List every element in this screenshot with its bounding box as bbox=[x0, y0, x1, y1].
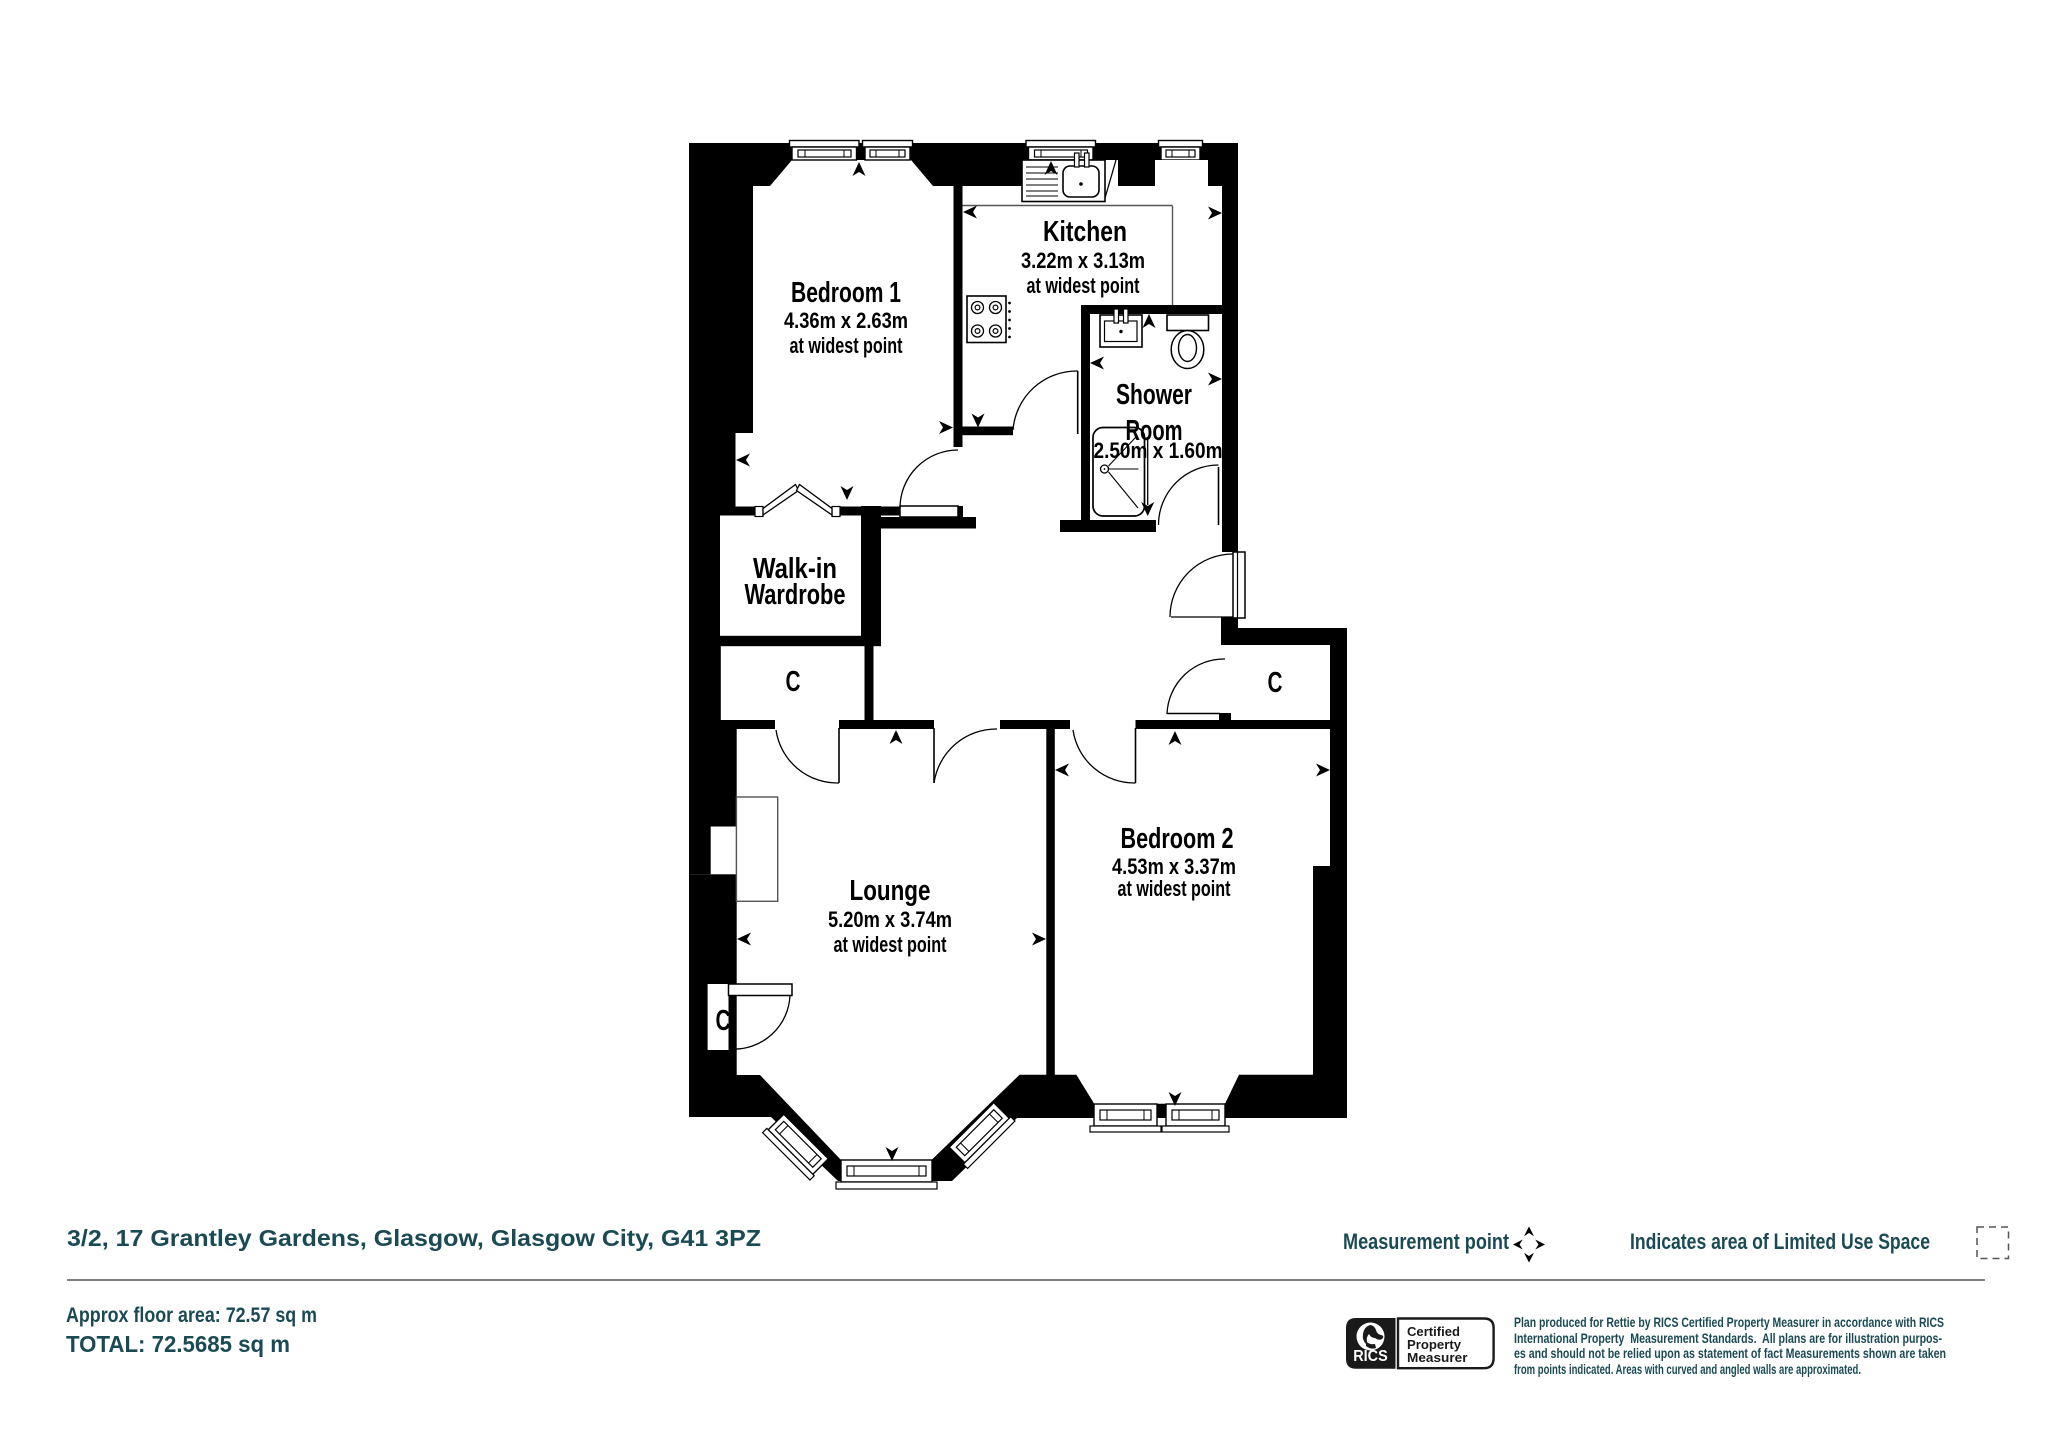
svg-text:Bedroom 1: Bedroom 1 bbox=[791, 277, 901, 309]
svg-text:3.22m x 3.13m: 3.22m x 3.13m bbox=[1021, 248, 1145, 273]
svg-text:Approx floor area: 72.57 sq m: Approx floor area: 72.57 sq m bbox=[66, 1304, 317, 1327]
svg-text:Lounge: Lounge bbox=[850, 875, 931, 907]
svg-text:C: C bbox=[716, 1005, 731, 1037]
svg-text:at widest point: at widest point bbox=[834, 932, 947, 957]
svg-text:at widest point: at widest point bbox=[1118, 876, 1231, 901]
svg-text:Shower: Shower bbox=[1116, 379, 1192, 411]
svg-text:C: C bbox=[786, 666, 801, 698]
svg-text:Plan produced for Rettie by RI: Plan produced for Rettie by RICS Certifi… bbox=[1514, 1315, 1944, 1330]
svg-text:at widest point: at widest point bbox=[1027, 273, 1140, 298]
svg-text:5.20m x 3.74m: 5.20m x 3.74m bbox=[828, 907, 952, 932]
svg-text:Wardrobe: Wardrobe bbox=[745, 579, 846, 611]
svg-text:from points indicated. Areas w: from points indicated. Areas with curved… bbox=[1514, 1362, 1861, 1377]
svg-text:4.36m x 2.63m: 4.36m x 2.63m bbox=[784, 308, 908, 333]
svg-text:RICS: RICS bbox=[1353, 1348, 1388, 1365]
svg-text:Measurement point: Measurement point bbox=[1343, 1229, 1510, 1254]
svg-text:International Property Measur: International Property Measurement Stand… bbox=[1514, 1331, 1942, 1346]
svg-text:3/2, 17 Grantley Gardens, Glas: 3/2, 17 Grantley Gardens, Glasgow, Glasg… bbox=[67, 1225, 761, 1251]
svg-text:TOTAL: 72.5685 sq m: TOTAL: 72.5685 sq m bbox=[66, 1331, 290, 1357]
svg-text:Bedroom 2: Bedroom 2 bbox=[1121, 823, 1234, 855]
svg-text:Indicates area of Limited Use: Indicates area of Limited Use Space bbox=[1630, 1229, 1930, 1254]
svg-text:at widest point: at widest point bbox=[790, 333, 903, 358]
svg-text:es and should not be relied up: es and should not be relied upon as stat… bbox=[1514, 1346, 1946, 1361]
svg-text:2.50m x 1.60m: 2.50m x 1.60m bbox=[1094, 438, 1223, 463]
svg-text:C: C bbox=[1268, 667, 1283, 699]
svg-text:Kitchen: Kitchen bbox=[1043, 216, 1127, 248]
svg-text:Measurer: Measurer bbox=[1407, 1350, 1468, 1365]
